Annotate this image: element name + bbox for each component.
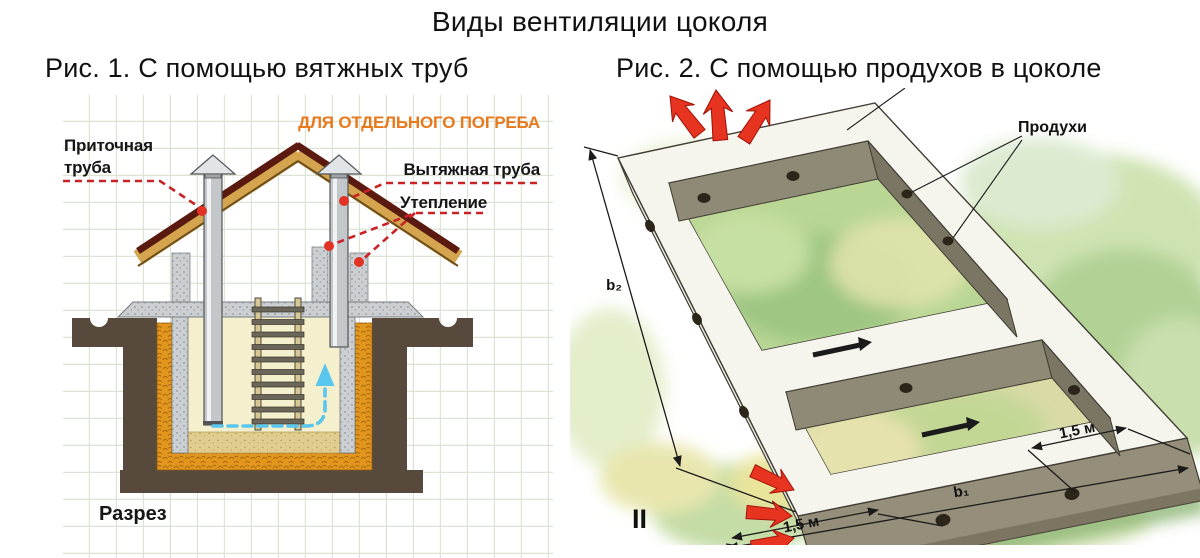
label-section-view: Разрез bbox=[99, 503, 167, 525]
figure2-caption: Рис. 2. С помощью продухов в цоколе bbox=[616, 53, 1102, 84]
figure1-cellar-section: ДЛЯ ОТДЕЛЬНОГО ПОГРЕБА bbox=[63, 95, 553, 558]
label-supply-pipe-line2: труба bbox=[64, 158, 112, 177]
label-air-inlet-mark: II bbox=[632, 504, 647, 534]
page-title: Виды вентиляции цоколя bbox=[0, 6, 1200, 38]
label-vents: Продухи bbox=[1018, 119, 1087, 136]
label-insulation: Утепление bbox=[400, 193, 487, 212]
sand-floor bbox=[188, 432, 340, 453]
figure2-foundation-vents: Продухи b₂ b₁ 1,5 м 1,5 м II bbox=[570, 88, 1200, 545]
label-dim-b2: b₂ bbox=[606, 277, 622, 294]
figure1-caption: Рис. 1. С помощью вятжных труб bbox=[45, 53, 469, 84]
label-supply-pipe-line1: Приточная bbox=[64, 136, 153, 155]
label-dim-b1: b₁ bbox=[952, 482, 970, 501]
figure1-heading: ДЛЯ ОТДЕЛЬНОГО ПОГРЕБА bbox=[298, 113, 540, 132]
label-exhaust-pipe: Вытяжная труба bbox=[403, 160, 540, 179]
page: Виды вентиляции цоколя Рис. 1. С помощью… bbox=[0, 0, 1200, 558]
